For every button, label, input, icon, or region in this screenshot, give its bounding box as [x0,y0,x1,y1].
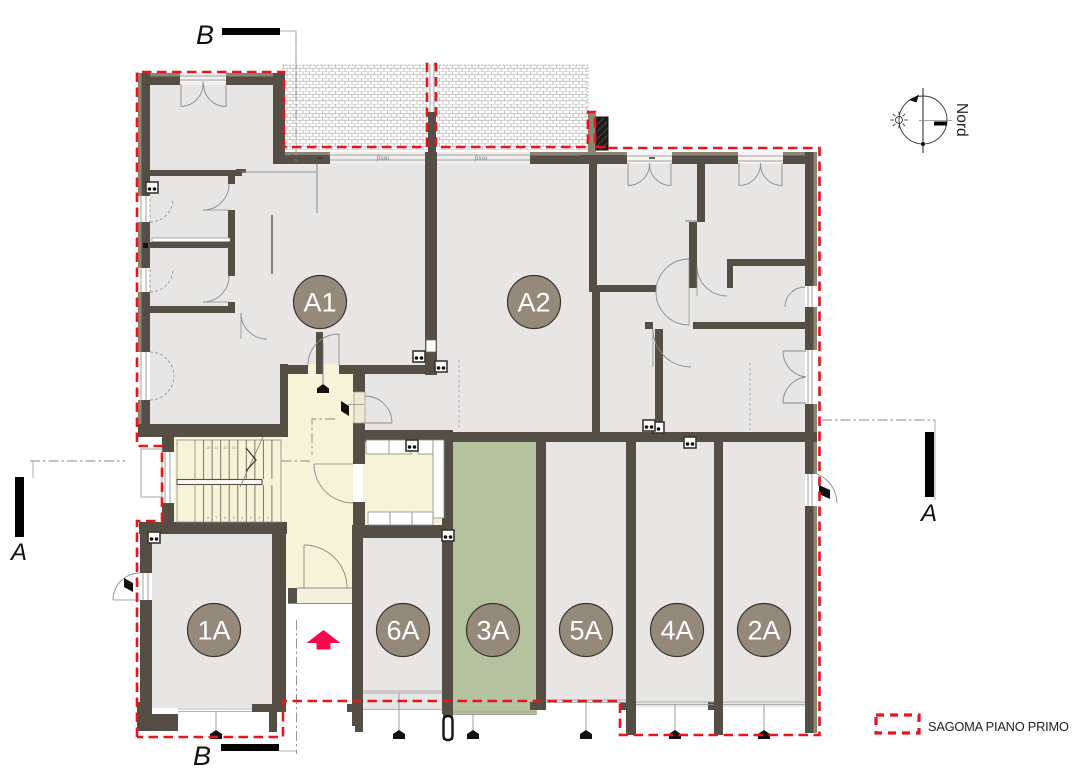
svg-text:2: 2 [258,516,260,520]
svg-text:4: 4 [241,516,243,520]
svg-text:7: 7 [216,516,218,520]
svg-text:12: 12 [223,446,227,450]
svg-text:fisso: fisso [377,154,390,162]
svg-text:10: 10 [206,446,210,450]
svg-text:6A: 6A [386,616,419,646]
svg-text:B: B [193,741,211,771]
svg-text:A1: A1 [303,288,336,318]
svg-text:4A: 4A [660,616,693,646]
svg-text:6: 6 [224,516,226,520]
svg-text:B: B [196,20,214,50]
svg-text:5: 5 [233,516,235,520]
svg-text:1A: 1A [197,616,230,646]
svg-text:2A: 2A [747,616,780,646]
svg-text:8: 8 [207,516,209,520]
svg-text:3A: 3A [476,616,509,646]
svg-text:fisso: fisso [475,154,488,162]
svg-text:1: 1 [267,516,269,520]
svg-text:A2: A2 [517,288,550,318]
svg-text:Nord: Nord [953,103,970,137]
svg-text:SAGOMA PIANO PRIMO: SAGOMA PIANO PRIMO [928,719,1069,734]
svg-text:A: A [9,539,27,566]
svg-text:5A: 5A [569,616,602,646]
svg-text:3: 3 [250,516,252,520]
svg-text:13: 13 [232,446,236,450]
svg-text:11: 11 [215,446,219,450]
svg-text:A: A [919,500,937,527]
